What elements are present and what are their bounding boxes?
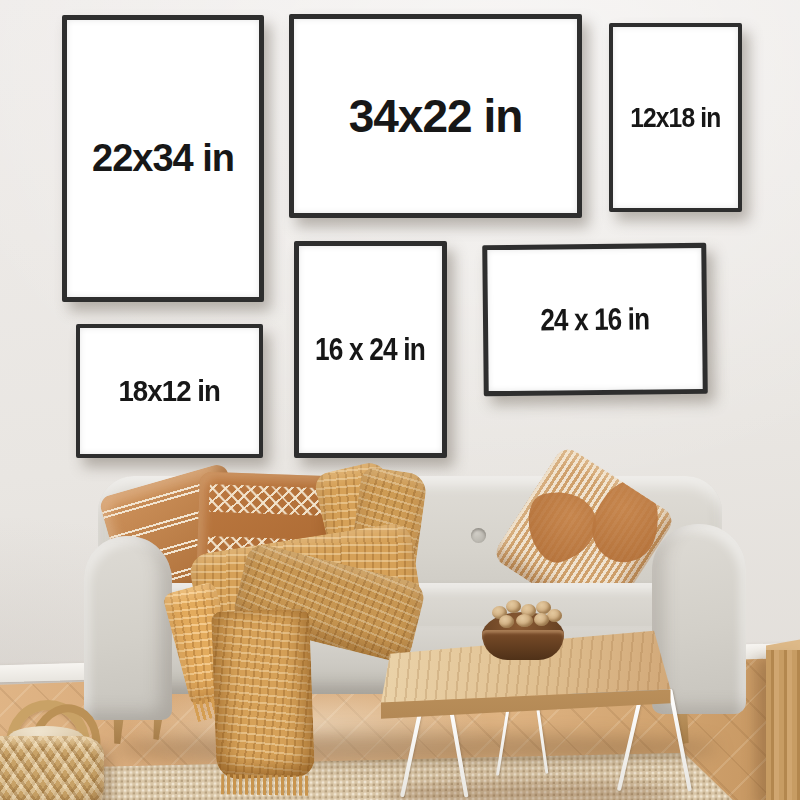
frame-16x24: 16 x 24 in <box>294 241 447 458</box>
frame-12x18: 12x18 in <box>609 23 742 212</box>
wooden-bowl-front <box>482 630 564 660</box>
pillow-lattice-band <box>208 484 330 516</box>
woven-basket <box>0 736 104 800</box>
blanket-fringe <box>221 774 309 796</box>
frame-size-label: 18x12 in <box>119 374 221 408</box>
frame-size-label: 24 x 16 in <box>540 301 649 338</box>
frame-22x34: 22x34 in <box>62 15 264 302</box>
sofa-tuft-button <box>471 528 486 543</box>
living-room-frame-size-guide: 22x34 in 34x22 in 12x18 in 16 x 24 in 24… <box>0 0 800 800</box>
sofa-arm-left <box>84 536 172 720</box>
frame-34x22: 34x22 in <box>289 14 582 218</box>
walnut <box>547 609 562 622</box>
walnut <box>499 615 514 628</box>
frame-size-label: 22x34 in <box>92 137 234 180</box>
walnut <box>506 600 521 613</box>
throw-blanket-floor-drape <box>211 608 315 779</box>
frame-24x16: 24 x 16 in <box>482 243 708 396</box>
frame-18x12: 18x12 in <box>76 324 263 458</box>
frame-size-label: 12x18 in <box>630 102 720 134</box>
frame-size-label: 34x22 in <box>349 89 523 143</box>
frame-size-label: 16 x 24 in <box>316 331 426 368</box>
wood-cube-stool <box>766 650 800 800</box>
walnut <box>516 614 533 627</box>
walnut <box>534 613 549 626</box>
